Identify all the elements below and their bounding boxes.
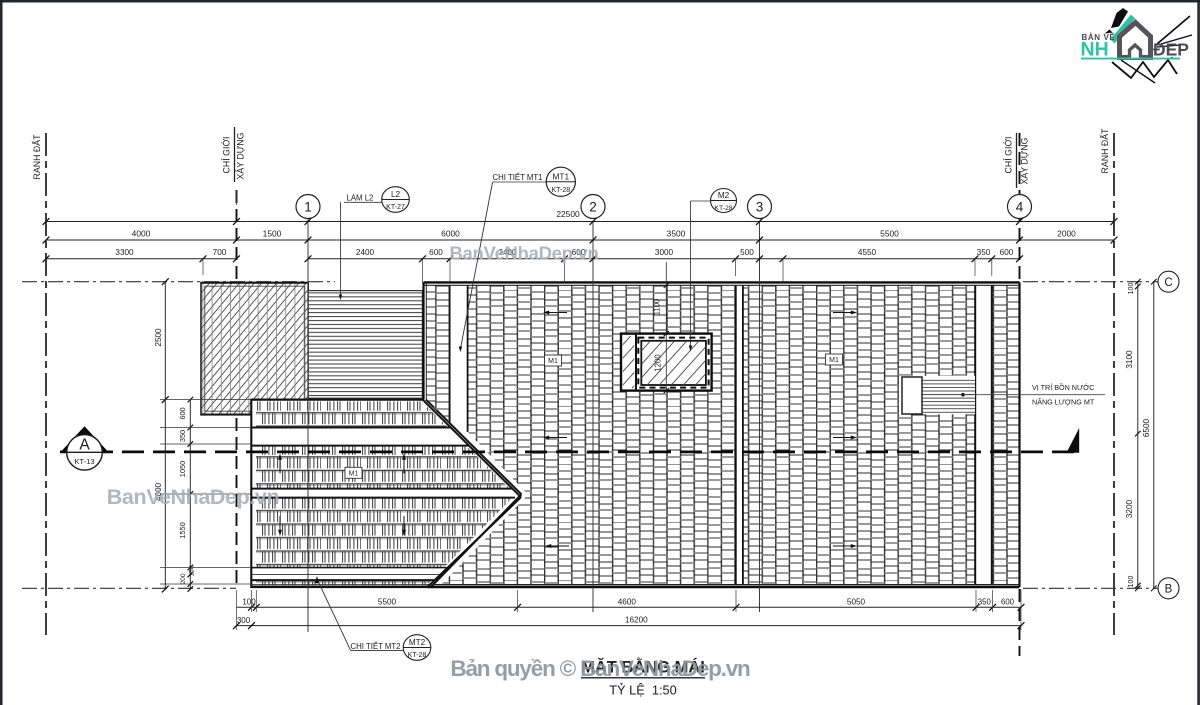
- svg-text:350: 350: [178, 430, 187, 442]
- svg-text:100: 100: [1128, 283, 1135, 295]
- svg-text:6000: 6000: [441, 228, 460, 238]
- svg-text:M2: M2: [718, 191, 730, 200]
- svg-text:5500: 5500: [880, 228, 899, 238]
- svg-text:1200: 1200: [654, 354, 663, 372]
- svg-text:M1: M1: [548, 358, 558, 365]
- svg-text:5500: 5500: [378, 597, 397, 606]
- svg-text:CHỈ GIỚI: CHỈ GIỚI: [1003, 137, 1014, 174]
- svg-text:RANH ĐẤT: RANH ĐẤT: [1100, 128, 1110, 174]
- svg-text:3200: 3200: [1125, 499, 1134, 518]
- svg-text:NĂNG LƯỢNG MT: NĂNG LƯỢNG MT: [1032, 398, 1095, 407]
- svg-text:2000: 2000: [1057, 228, 1076, 238]
- svg-text:4: 4: [1016, 199, 1024, 214]
- svg-text:600: 600: [178, 407, 187, 419]
- svg-text:1: 1: [304, 199, 312, 214]
- svg-text:6500: 6500: [1142, 418, 1151, 437]
- svg-text:4550: 4550: [858, 248, 877, 257]
- svg-text:3300: 3300: [115, 248, 134, 257]
- svg-text:BanVeNhaDep.vn: BanVeNhaDep.vn: [107, 485, 279, 509]
- svg-text:1550: 1550: [178, 522, 187, 538]
- svg-text:5050: 5050: [847, 597, 866, 606]
- svg-text:KT-28: KT-28: [408, 652, 427, 659]
- svg-text:3500: 3500: [667, 228, 686, 238]
- svg-text:500: 500: [740, 248, 754, 257]
- svg-text:KT-28: KT-28: [714, 205, 732, 212]
- svg-text:KT-28: KT-28: [551, 187, 570, 194]
- svg-text:L2: L2: [391, 190, 401, 199]
- svg-text:1500: 1500: [263, 228, 282, 238]
- svg-text:600: 600: [429, 248, 443, 257]
- svg-text:RANH ĐẤT: RANH ĐẤT: [32, 134, 42, 180]
- svg-text:MT1: MT1: [552, 171, 569, 181]
- svg-text:100: 100: [1128, 576, 1135, 588]
- svg-text:Bản quyền © BanVeNhaDep.vn: Bản quyền © BanVeNhaDep.vn: [450, 656, 750, 681]
- svg-text:B: B: [1165, 584, 1173, 596]
- svg-text:16200: 16200: [625, 615, 648, 624]
- svg-text:ĐẸP: ĐẸP: [1153, 40, 1189, 60]
- svg-text:M1: M1: [349, 470, 359, 477]
- svg-text:4000: 4000: [132, 228, 151, 238]
- svg-text:CHI TIẾT MT1: CHI TIẾT MT1: [493, 172, 543, 182]
- svg-text:600: 600: [1001, 597, 1015, 606]
- svg-text:C: C: [1164, 277, 1172, 289]
- svg-text:VỊ TRÍ BỒN NƯỚC: VỊ TRÍ BỒN NƯỚC: [1032, 382, 1095, 392]
- svg-text:KT-13: KT-13: [74, 457, 94, 466]
- svg-text:3: 3: [756, 199, 764, 214]
- svg-text:1100: 1100: [653, 298, 662, 315]
- svg-text:350: 350: [978, 597, 992, 606]
- svg-text:NH: NH: [1081, 39, 1109, 61]
- svg-text:2500: 2500: [154, 328, 163, 347]
- svg-text:CHI TIẾT MT2: CHI TIẾT MT2: [351, 641, 401, 651]
- svg-text:22500: 22500: [556, 209, 580, 219]
- svg-text:XÂY DỰNG: XÂY DỰNG: [1020, 137, 1030, 184]
- svg-text:350: 350: [977, 248, 991, 257]
- svg-text:2400: 2400: [356, 248, 375, 257]
- svg-text:3000: 3000: [655, 248, 674, 257]
- svg-text:M1: M1: [829, 357, 839, 364]
- svg-text:300: 300: [237, 616, 251, 625]
- svg-text:KT-27: KT-27: [386, 204, 405, 211]
- svg-text:200: 200: [180, 573, 187, 584]
- svg-text:MT2: MT2: [409, 638, 426, 647]
- svg-text:4600: 4600: [618, 597, 637, 606]
- svg-text:BanVeNhaDep.vn: BanVeNhaDep.vn: [450, 243, 599, 264]
- svg-text:150: 150: [189, 565, 196, 576]
- svg-text:A: A: [79, 436, 90, 453]
- svg-text:100: 100: [242, 597, 256, 606]
- svg-text:1050: 1050: [178, 461, 187, 477]
- svg-text:600: 600: [1000, 248, 1014, 257]
- svg-text:XÂY DỰNG: XÂY DỰNG: [236, 132, 246, 179]
- svg-text:TỶ LỆ 1:50: TỶ LỆ 1:50: [609, 683, 677, 698]
- svg-text:LAM L2: LAM L2: [347, 194, 374, 203]
- svg-text:2: 2: [589, 199, 597, 214]
- svg-text:700: 700: [213, 248, 227, 257]
- svg-text:CHỈ GIỚI: CHỈ GIỚI: [221, 137, 232, 174]
- svg-text:3100: 3100: [1125, 350, 1134, 369]
